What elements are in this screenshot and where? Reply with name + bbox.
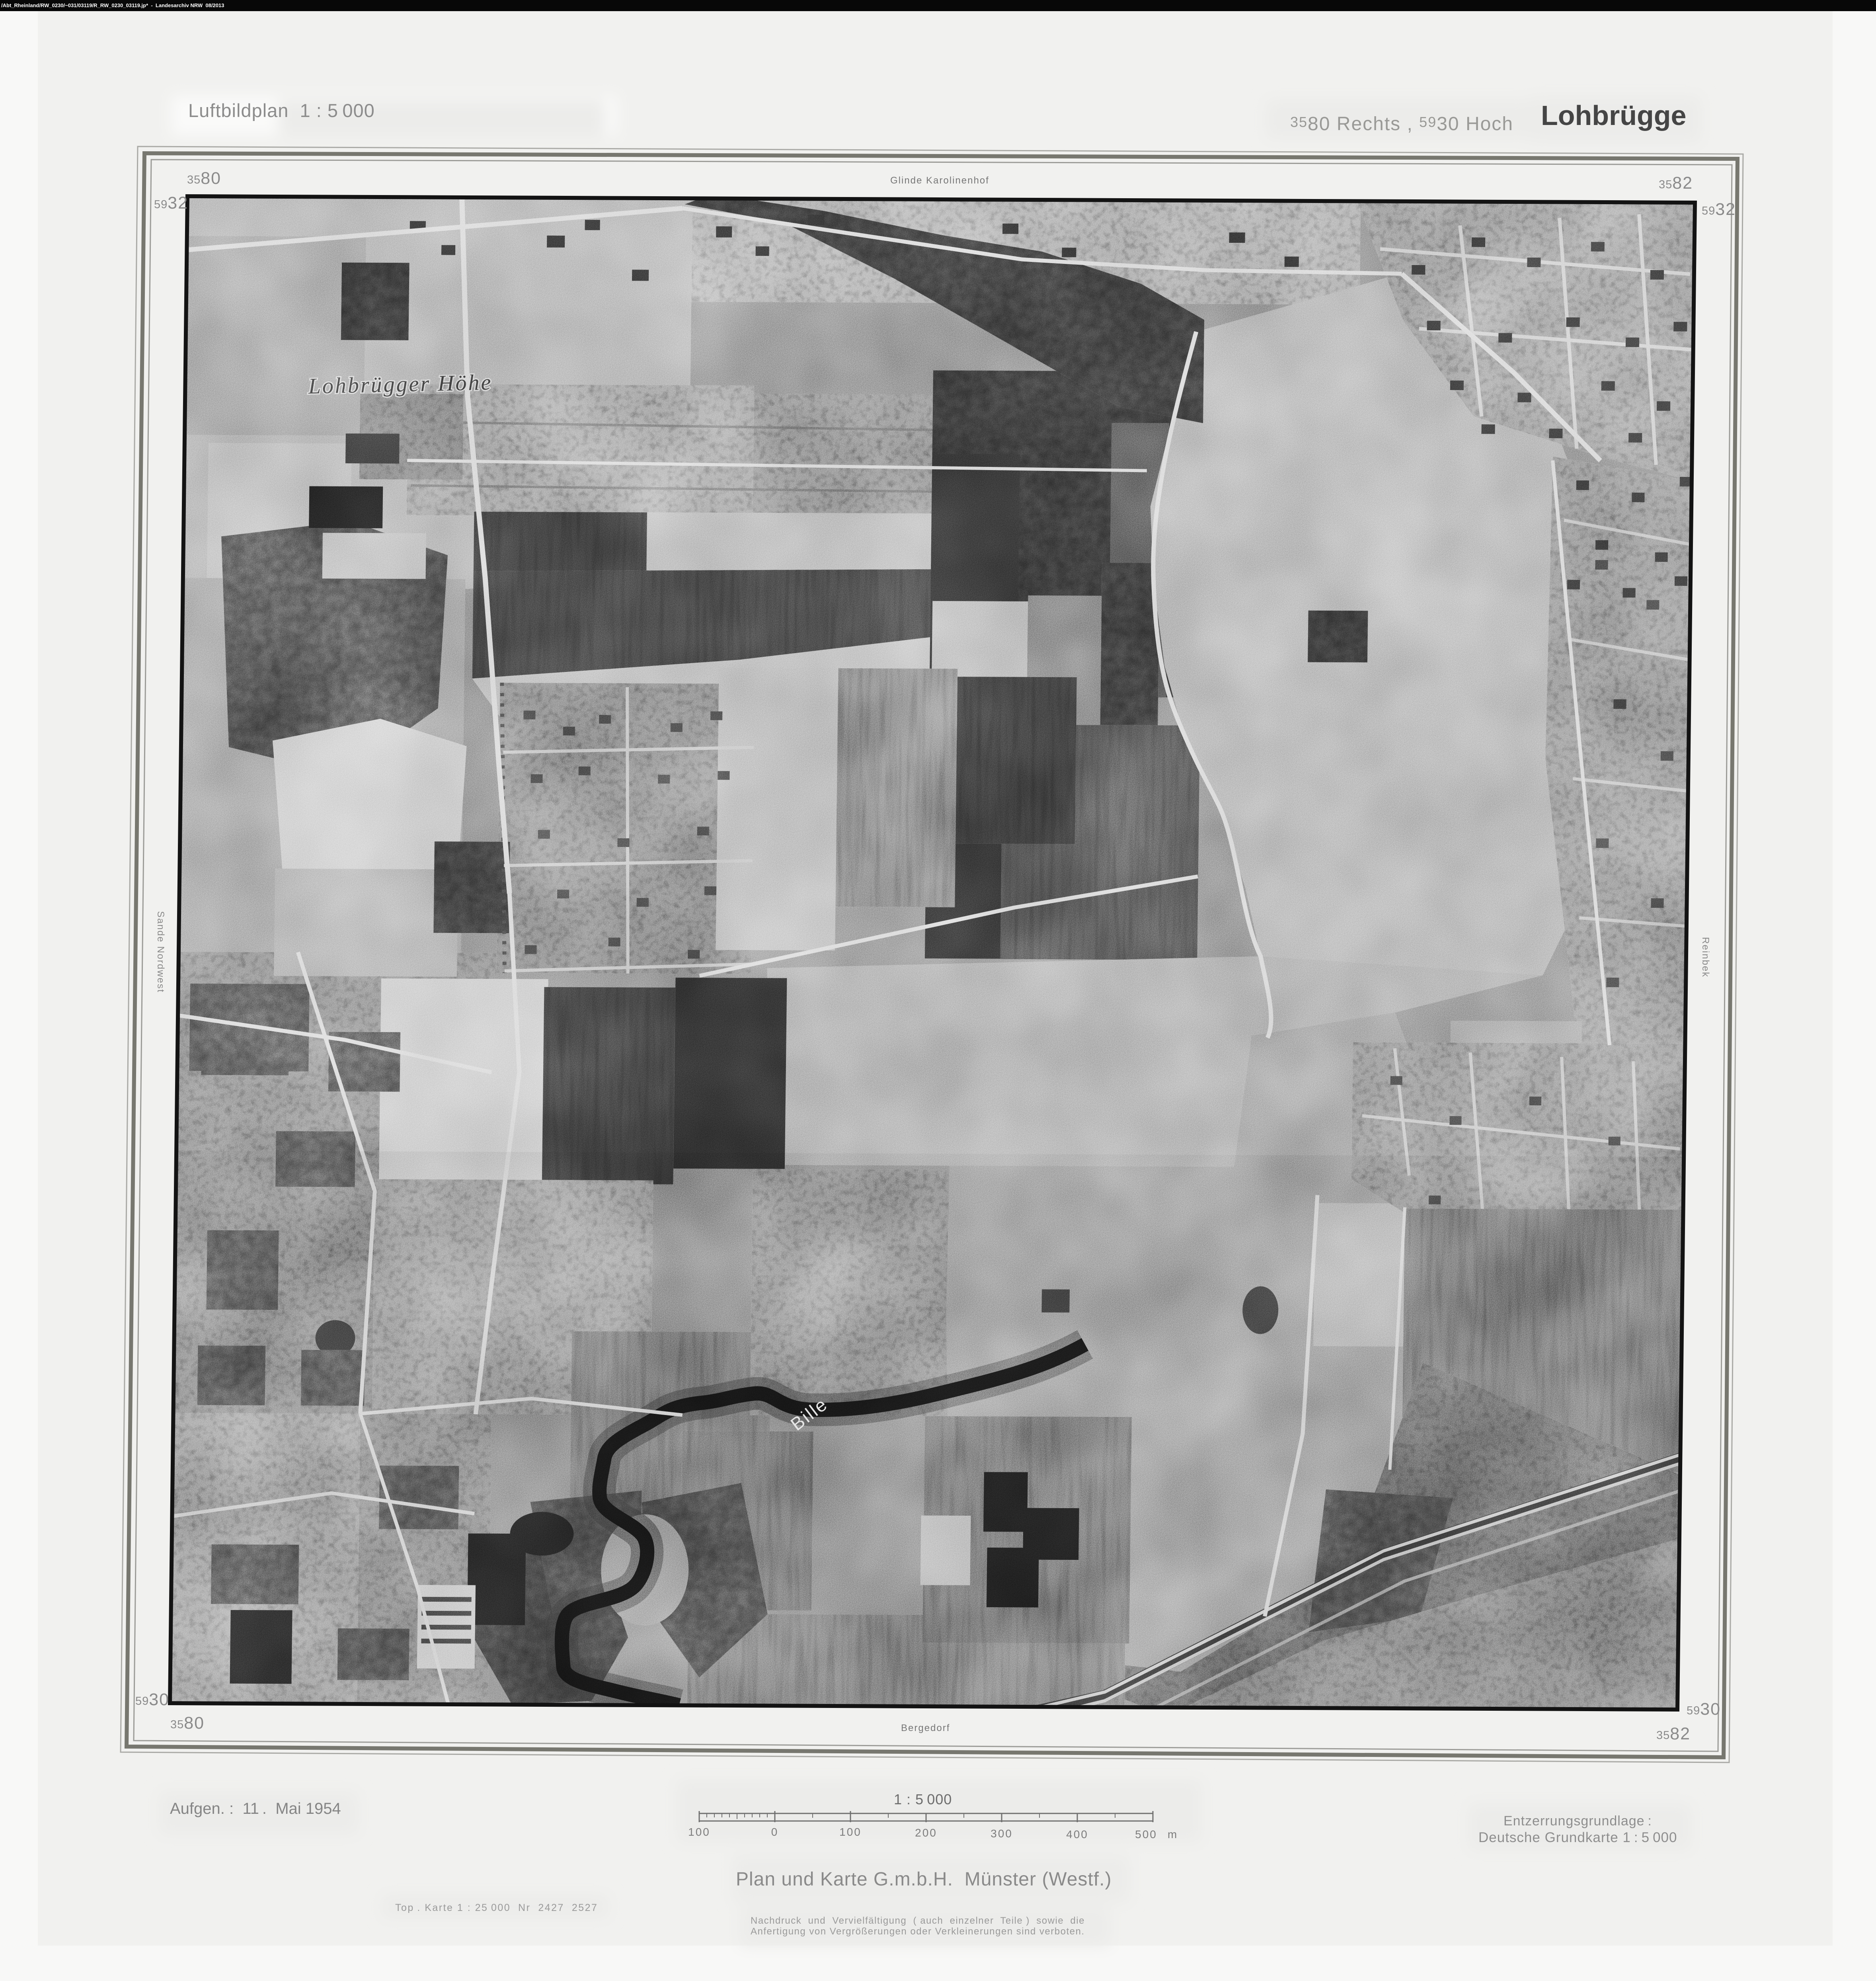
svg-text:200: 200 (915, 1827, 937, 1839)
svg-text:500: 500 (1135, 1828, 1157, 1840)
svg-text:300: 300 (991, 1827, 1013, 1840)
svg-text:100: 100 (688, 1826, 710, 1838)
svg-text:m: m (1168, 1828, 1178, 1840)
svg-text:0: 0 (771, 1826, 779, 1838)
svg-text:400: 400 (1066, 1828, 1088, 1840)
svg-text:100: 100 (839, 1826, 862, 1838)
